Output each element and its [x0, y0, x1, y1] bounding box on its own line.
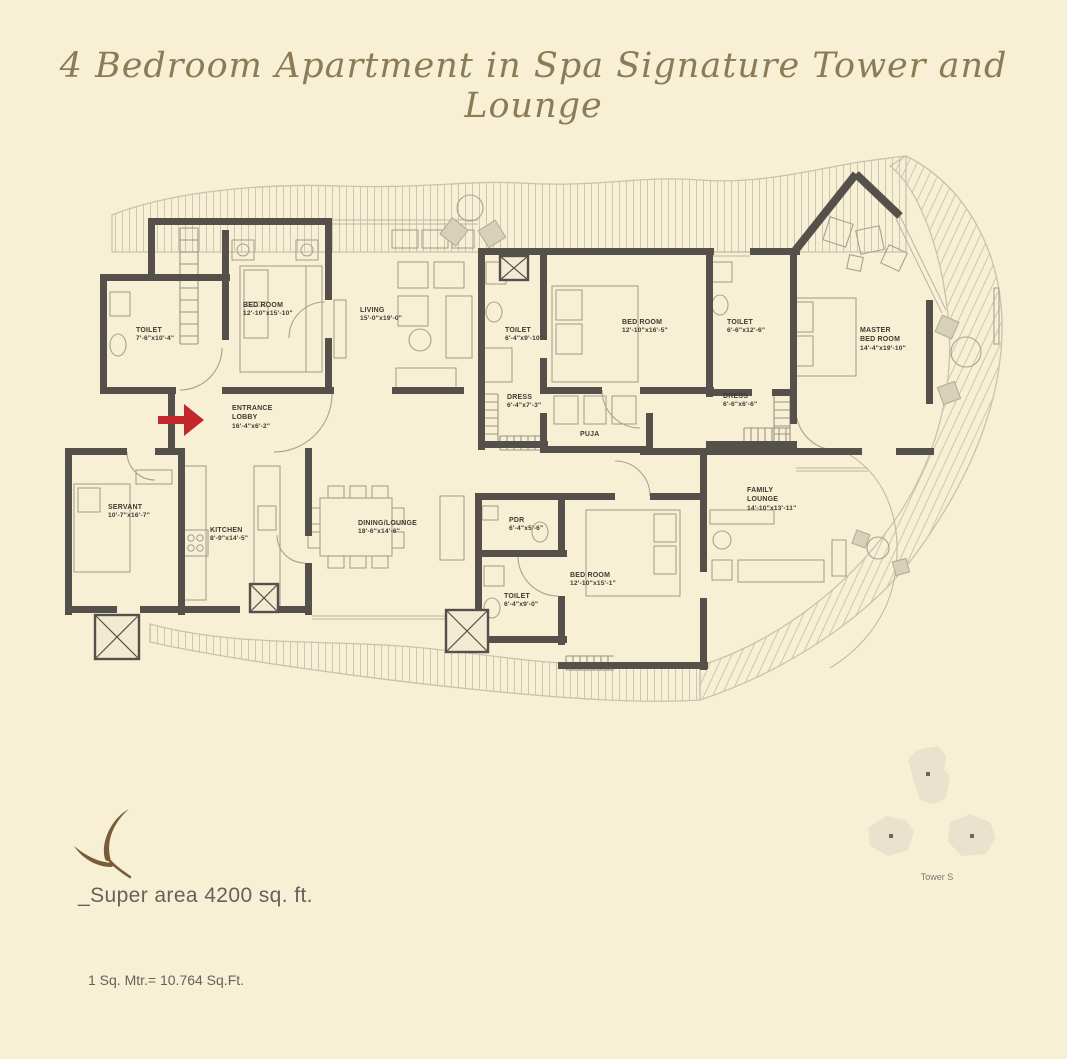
super-area-text: _Super area 4200 sq. ft.: [78, 884, 313, 908]
entrance-arrow-icon: [158, 404, 204, 436]
terrace-decks: [112, 156, 1002, 701]
conversion-note: 1 Sq. Mtr.= 10.764 Sq.Ft.: [88, 972, 244, 988]
tower-label: Tower S: [862, 872, 1012, 882]
tower-locator-map: [862, 742, 1012, 868]
brand-leaf-logo-icon: [72, 806, 142, 881]
page: 4 Bedroom Apartment in Spa Signature Tow…: [0, 0, 1067, 1059]
